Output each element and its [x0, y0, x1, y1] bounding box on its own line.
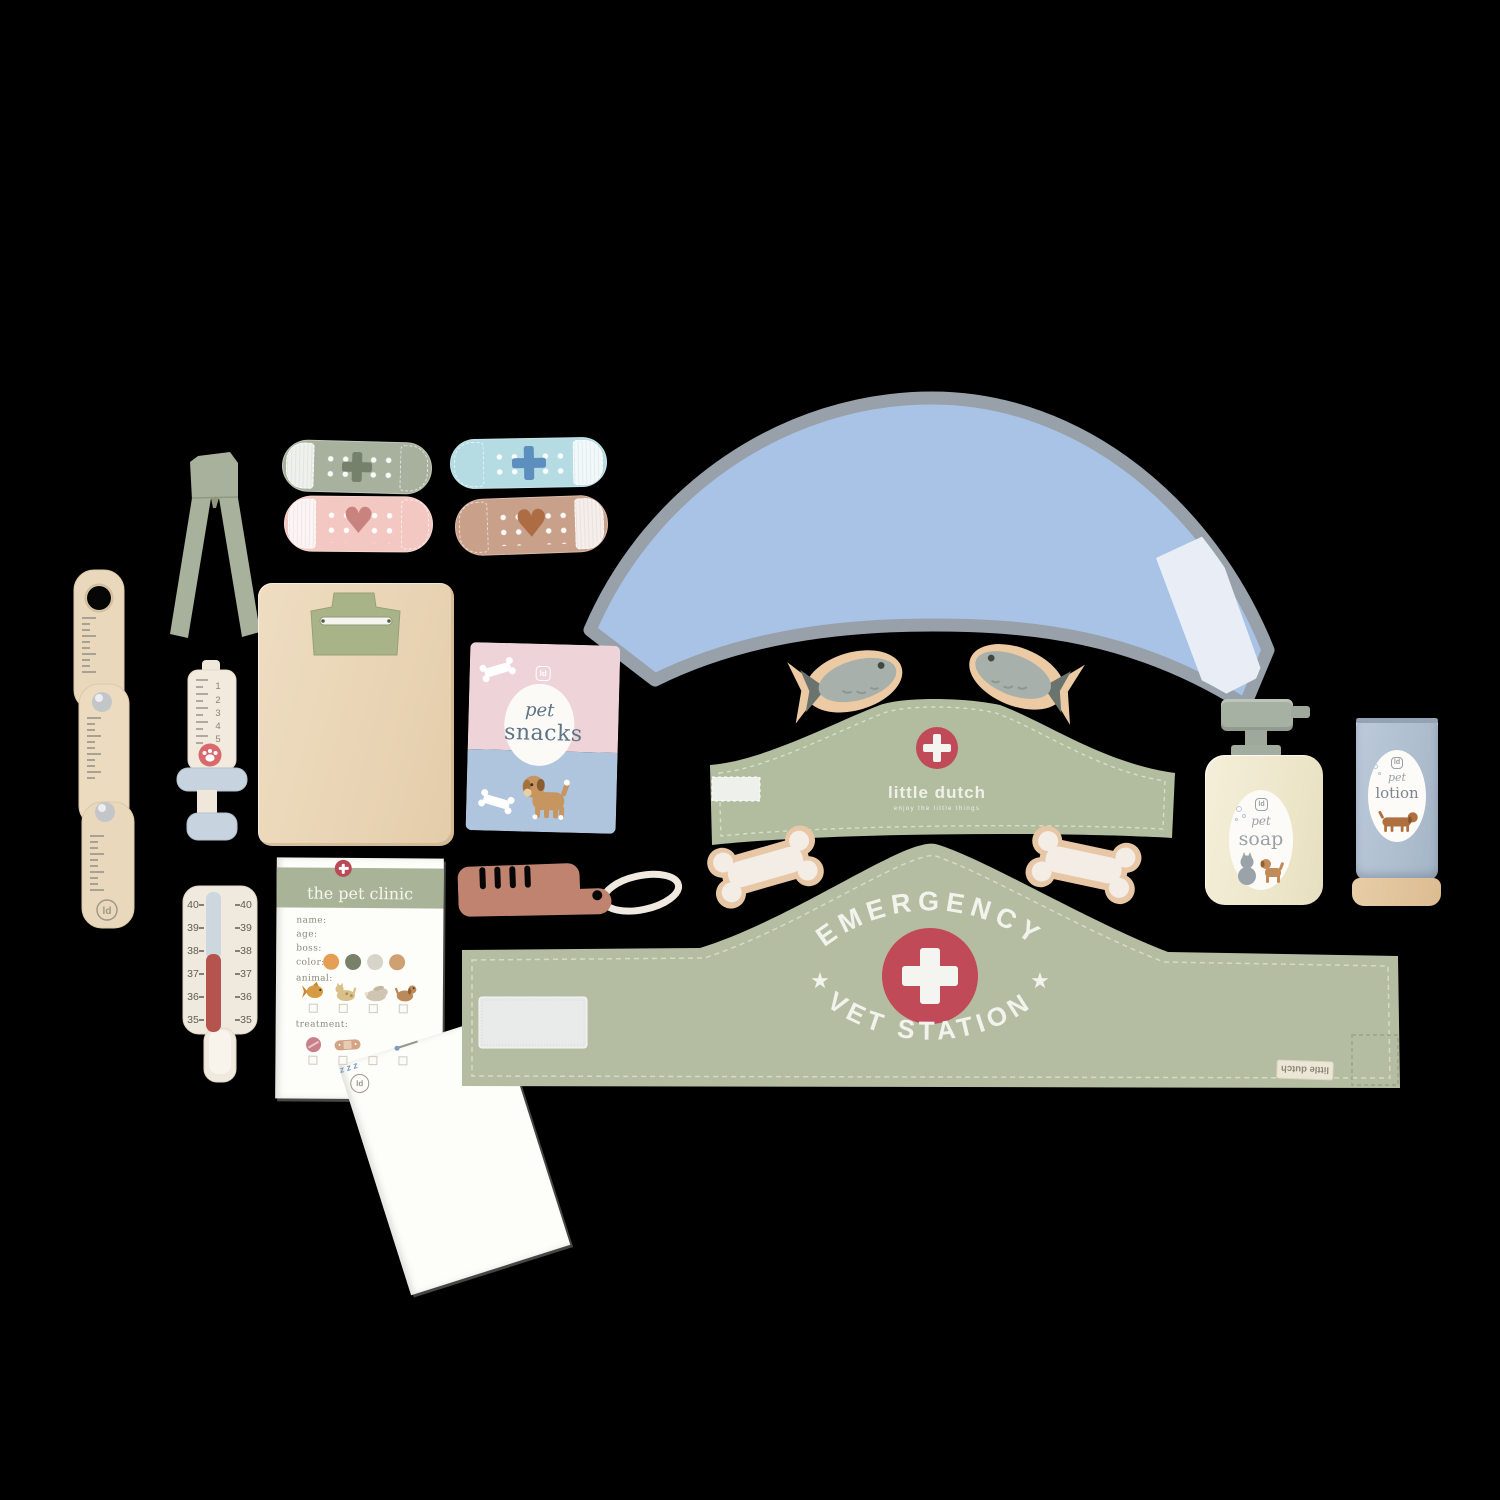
headband-small: little dutch enjoy the little things — [703, 693, 1188, 851]
field-age: age: — [296, 930, 317, 940]
field-treatment: treatment: — [296, 1020, 349, 1030]
svg-text:39: 39 — [240, 922, 252, 934]
star-icon: ★ — [1030, 968, 1050, 993]
thermometer: 4040 3939 3838 3737 3636 3535 — [178, 878, 263, 1090]
svg-text:38: 38 — [240, 945, 252, 957]
svg-text:4: 4 — [215, 721, 220, 732]
dachshund-illustration — [1375, 808, 1421, 834]
dog-icon — [394, 982, 418, 1002]
bone-illustration — [476, 788, 517, 815]
field-color: color: — [296, 958, 325, 968]
color-swatch-green — [345, 954, 361, 970]
checkbox — [308, 1056, 317, 1065]
svg-text:1: 1 — [215, 681, 220, 692]
clipboard-clip — [308, 591, 404, 657]
checkbox — [338, 1056, 347, 1065]
label-word-pet: pet — [1229, 814, 1293, 828]
color-swatch-tan — [389, 954, 405, 970]
folding-ruler: ld — [70, 566, 148, 934]
checkbox — [368, 1056, 377, 1065]
mercury-red — [206, 954, 221, 1032]
stitch-tab — [458, 501, 489, 553]
svg-text:2: 2 — [215, 695, 220, 706]
checkbox — [309, 1004, 318, 1013]
ld-logo: ld — [350, 1074, 369, 1093]
pet-clinic-notepad: the pet clinic name: age: boss: color: a… — [275, 857, 444, 1099]
checkbox — [339, 1004, 348, 1013]
syringe-scale: 1 2 3 4 5 — [215, 681, 220, 745]
brand-tag: little dutch — [1277, 1060, 1334, 1080]
stitch-tab — [399, 445, 429, 493]
syringe: 1 2 3 4 5 — [172, 658, 252, 848]
heart-icon: ♥ — [342, 504, 375, 540]
svg-text:36: 36 — [240, 991, 252, 1003]
bandage-green — [281, 439, 432, 495]
velcro-tab — [288, 498, 317, 549]
puppy-illustration — [518, 771, 583, 825]
svg-text:35: 35 — [187, 1014, 199, 1026]
brand-tag-text: little dutch — [1281, 1063, 1330, 1076]
svg-text:38: 38 — [187, 945, 199, 957]
svg-text:40: 40 — [240, 899, 252, 911]
field-boss: boss: — [296, 944, 322, 954]
checkbox — [369, 1004, 378, 1013]
svg-text:39: 39 — [187, 922, 199, 934]
star-icon: ★ — [810, 968, 830, 993]
color-swatch-gray — [367, 954, 383, 970]
bone-illustration — [477, 656, 518, 683]
label-word-snacks: snacks — [504, 720, 575, 747]
stitch-tab — [401, 499, 430, 550]
pump-spout — [1291, 706, 1310, 718]
label-word-lotion: lotion — [1368, 784, 1426, 802]
cross-icon — [511, 446, 546, 481]
velcro-patch — [712, 777, 760, 801]
pad-title: the pet clinic — [277, 883, 444, 903]
checkbox — [398, 1056, 407, 1065]
svg-text:37: 37 — [187, 968, 199, 980]
label-word-pet: pet — [1368, 771, 1426, 784]
pill-icon — [304, 1036, 322, 1054]
ld-logo: ld — [103, 906, 112, 917]
ld-logo: ld — [535, 666, 550, 681]
mercury-blue — [206, 892, 221, 960]
tweezers — [166, 448, 266, 643]
cat-icon — [334, 982, 358, 1002]
svg-text:40: 40 — [187, 899, 199, 911]
bandage-pink: ♥ — [284, 495, 433, 552]
ld-logo: ld — [1255, 798, 1268, 811]
tube-crimp — [1356, 718, 1438, 723]
brand-tagline: enjoy the little things — [894, 806, 981, 812]
syringe-stick-icon — [393, 1036, 421, 1052]
field-name: name: — [296, 916, 326, 926]
velcro-tab — [285, 442, 315, 490]
ld-logo: ld — [1391, 757, 1403, 769]
pump-cap — [1221, 699, 1293, 731]
vet-station-band: EMERGENCY VET STATION ★ ★ little dutch — [452, 838, 1412, 1096]
stitch-tab — [454, 441, 485, 487]
pet-cone-collar — [560, 380, 1285, 725]
svg-text:36: 36 — [187, 991, 199, 1003]
cross-icon — [342, 452, 373, 483]
checkbox — [399, 1004, 408, 1013]
svg-text:35: 35 — [240, 1014, 252, 1026]
brand-text: little dutch — [888, 783, 986, 802]
rabbit-icon — [364, 982, 388, 1002]
clipboard — [258, 583, 454, 846]
heart-icon: ♥ — [514, 504, 549, 543]
svg-text:5: 5 — [215, 734, 220, 745]
pad-header: the pet clinic — [276, 867, 443, 908]
goldfish-icon — [302, 982, 326, 1002]
label-word-pet: pet — [504, 699, 575, 722]
cross-badge-icon — [335, 860, 352, 877]
paw-badge — [199, 744, 222, 767]
headband-felt — [710, 699, 1175, 845]
bandaid-icon — [333, 1038, 361, 1052]
color-swatch-orange — [323, 954, 339, 970]
svg-text:37: 37 — [240, 968, 252, 980]
velcro-patch — [479, 997, 587, 1048]
vet-playset-photo: ♥ ♥ ld — [0, 0, 1500, 1500]
lotion-label: ld pet lotion — [1368, 750, 1426, 842]
pet-snacks-box: ld pet snacks — [466, 642, 621, 834]
svg-text:3: 3 — [215, 708, 220, 719]
